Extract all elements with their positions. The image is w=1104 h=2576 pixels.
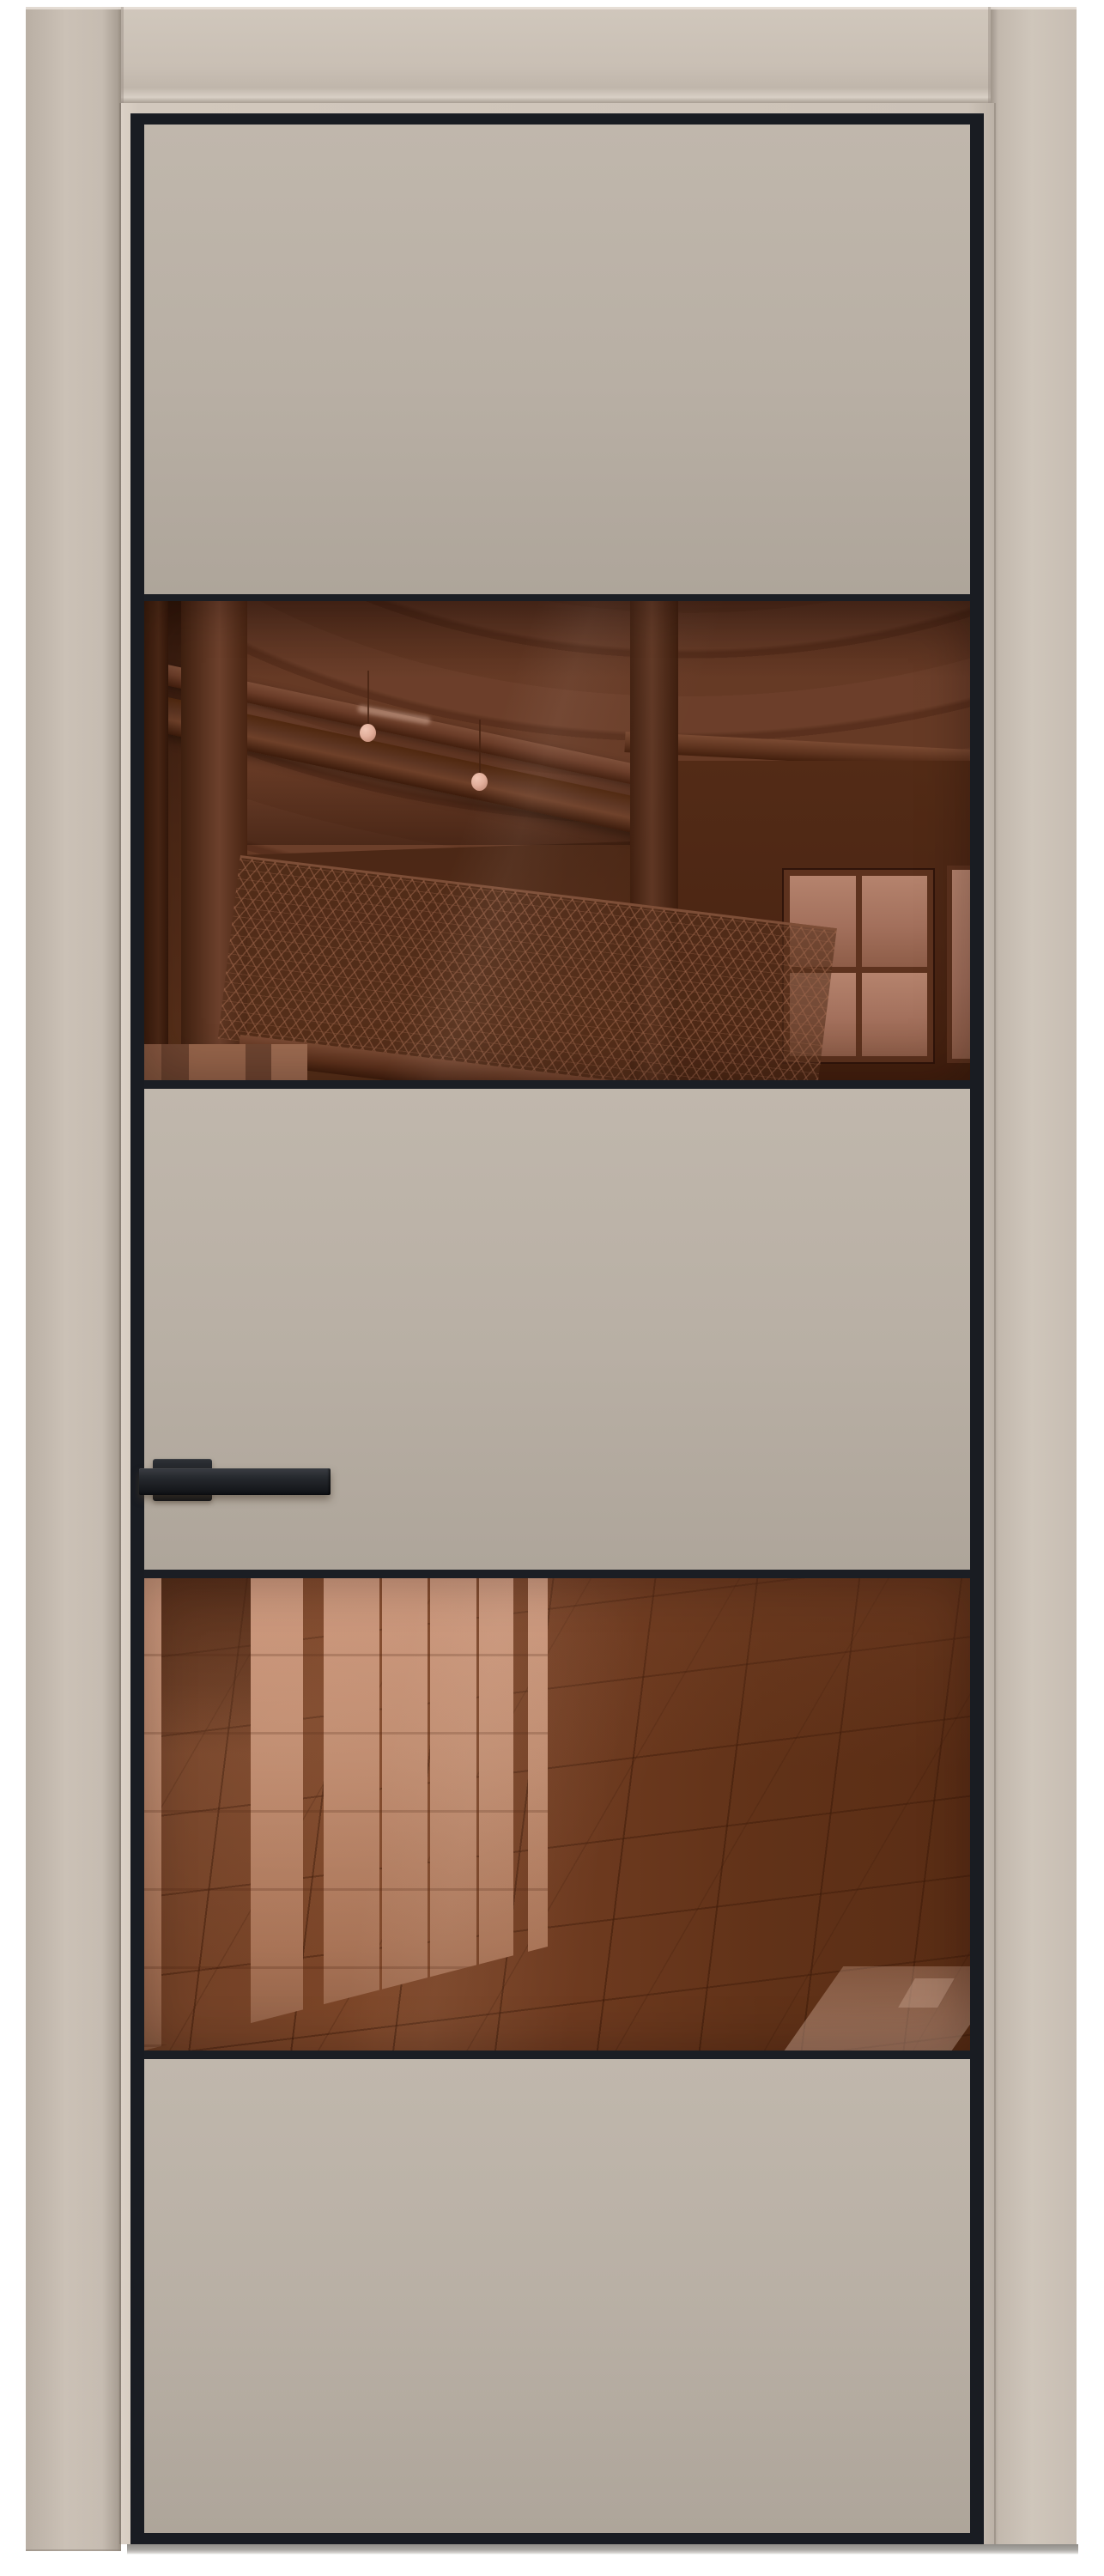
glass-insert-lower: [144, 1578, 970, 2050]
section-divider: [144, 2050, 970, 2059]
door-panel-top: [144, 125, 970, 594]
door-panel-middle: [144, 1089, 970, 1570]
section-divider: [144, 1080, 970, 1089]
door-black-trim: [130, 113, 984, 2544]
door-sections: [144, 125, 970, 2533]
product-image-door: [0, 0, 1104, 2576]
door-frame-left-architrave: [26, 7, 121, 2551]
door-handle-lever: [139, 1468, 331, 1495]
door-panel-bottom: [144, 2059, 970, 2533]
section-divider: [144, 594, 970, 601]
glass-sheen: [144, 1578, 970, 2050]
glass-insert-upper: [144, 601, 970, 1080]
floor-shadow: [127, 2544, 1078, 2555]
door-frame-header: [121, 7, 991, 103]
door-leaf: [121, 103, 994, 2544]
section-divider: [144, 1570, 970, 1578]
glass-sheen: [144, 601, 970, 1080]
door-frame-right-architrave: [991, 7, 1077, 2553]
